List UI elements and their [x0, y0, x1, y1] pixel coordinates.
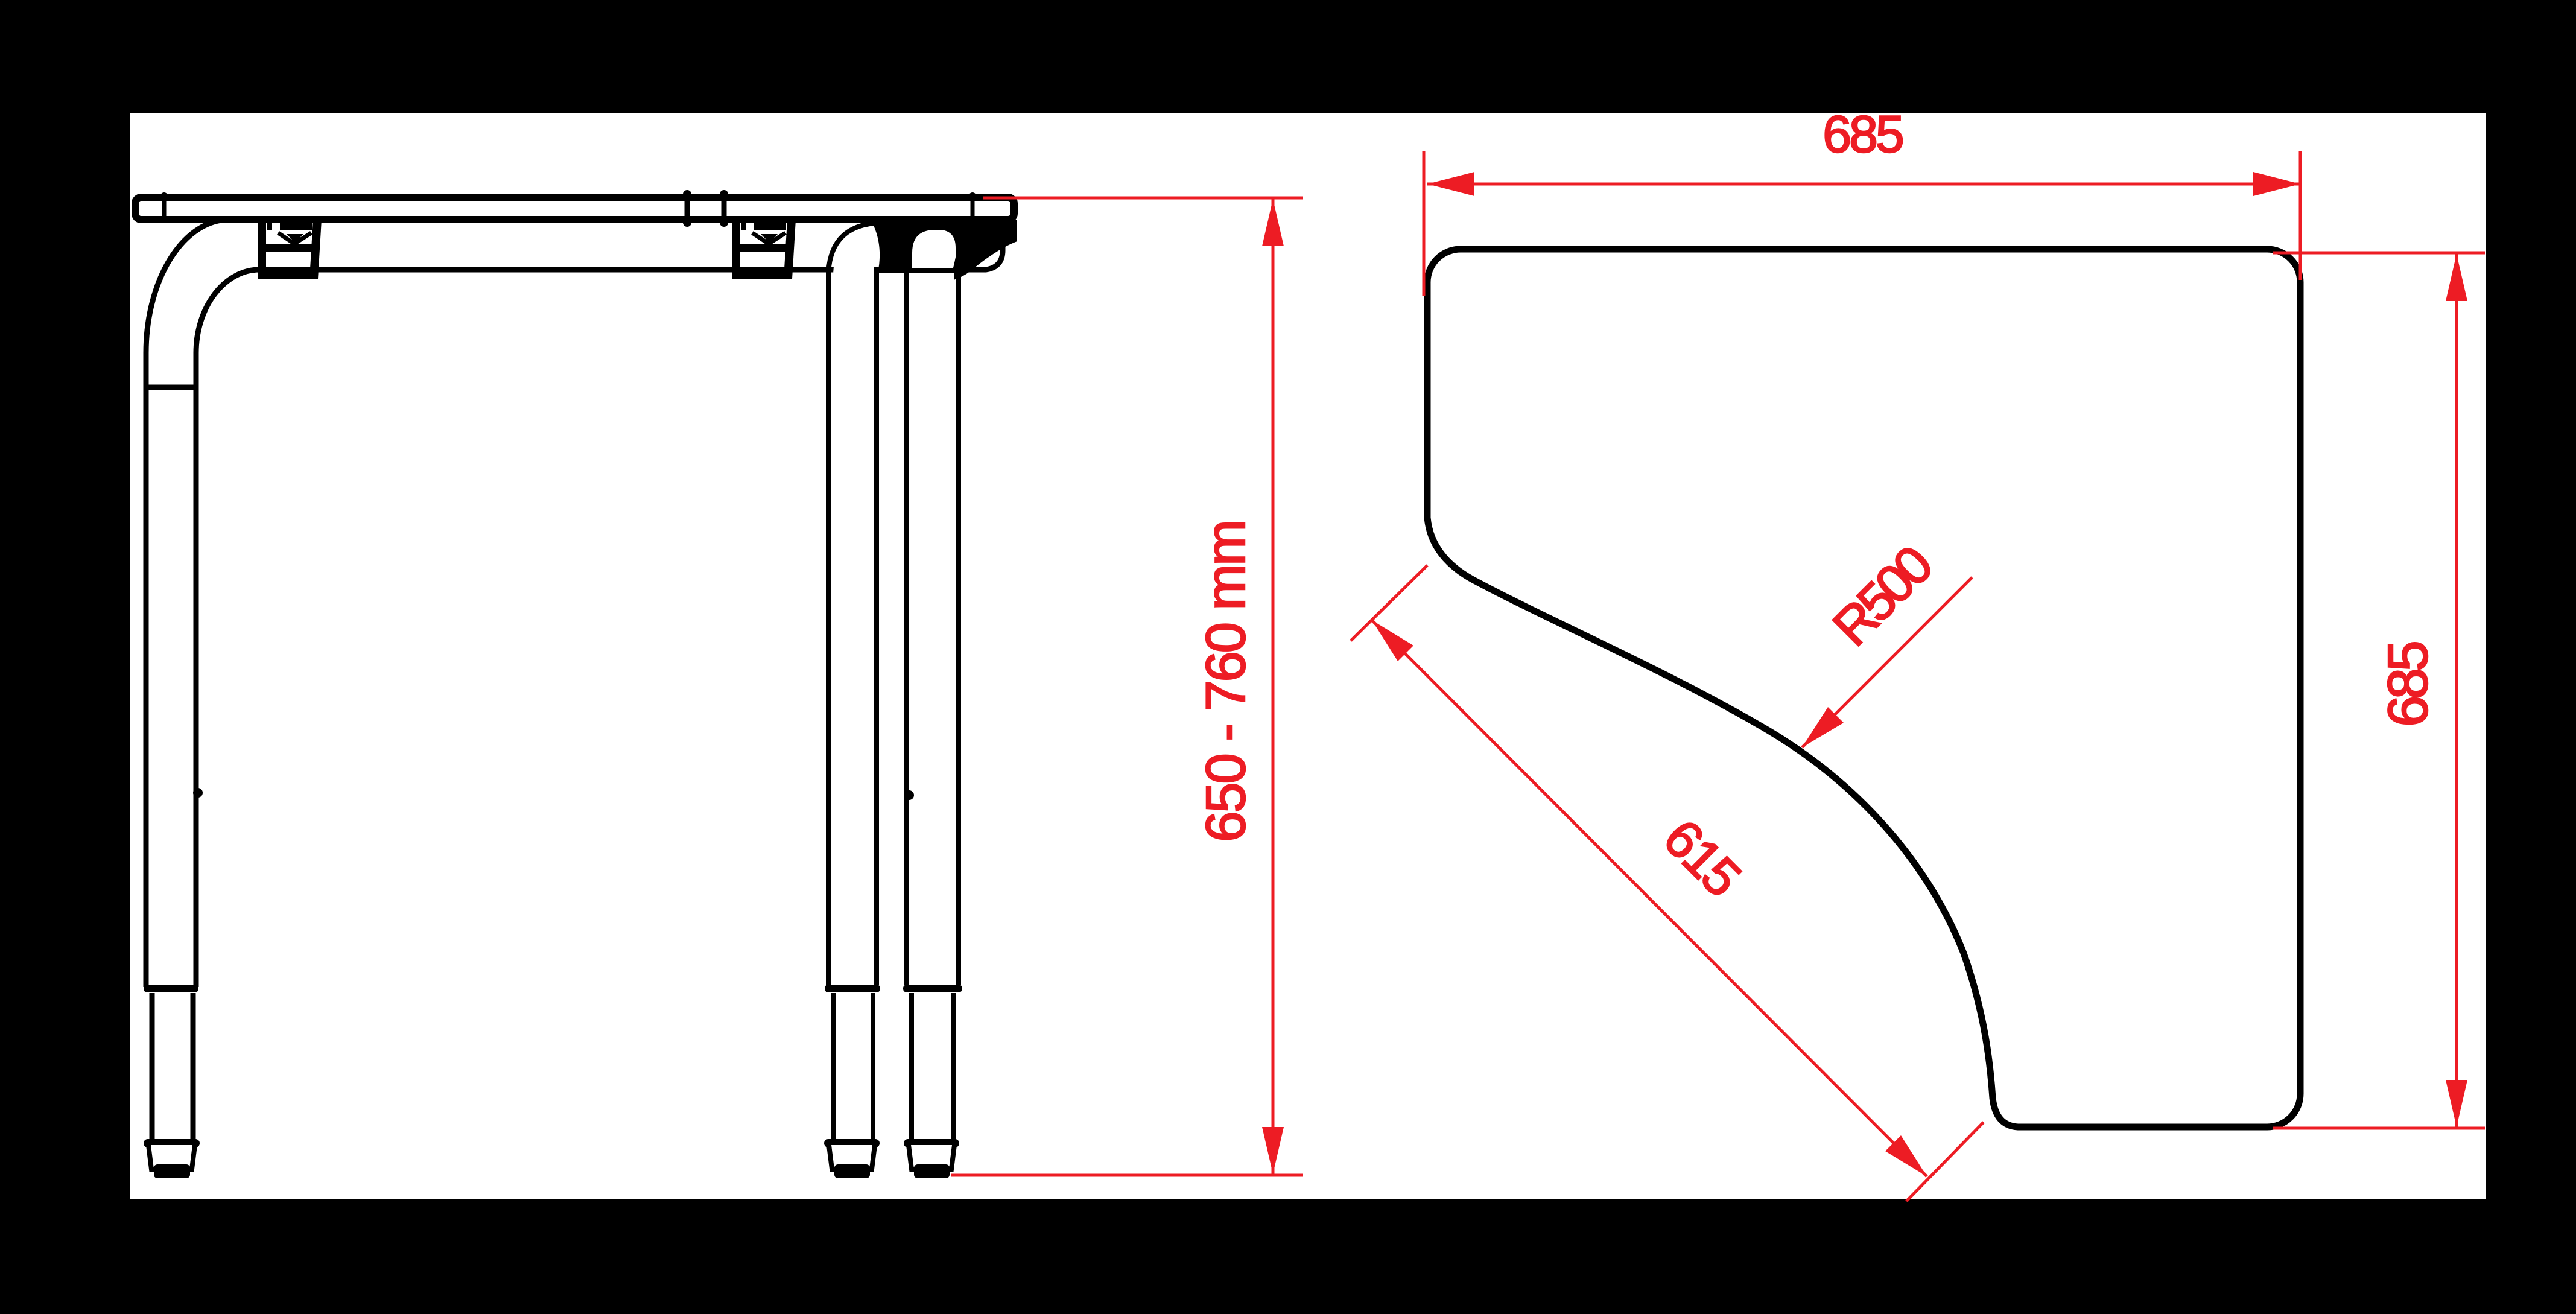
svg-text:685: 685: [2376, 643, 2439, 726]
svg-text:685: 685: [1823, 106, 1903, 163]
svg-text:650 - 760 mm: 650 - 760 mm: [1195, 521, 1257, 842]
